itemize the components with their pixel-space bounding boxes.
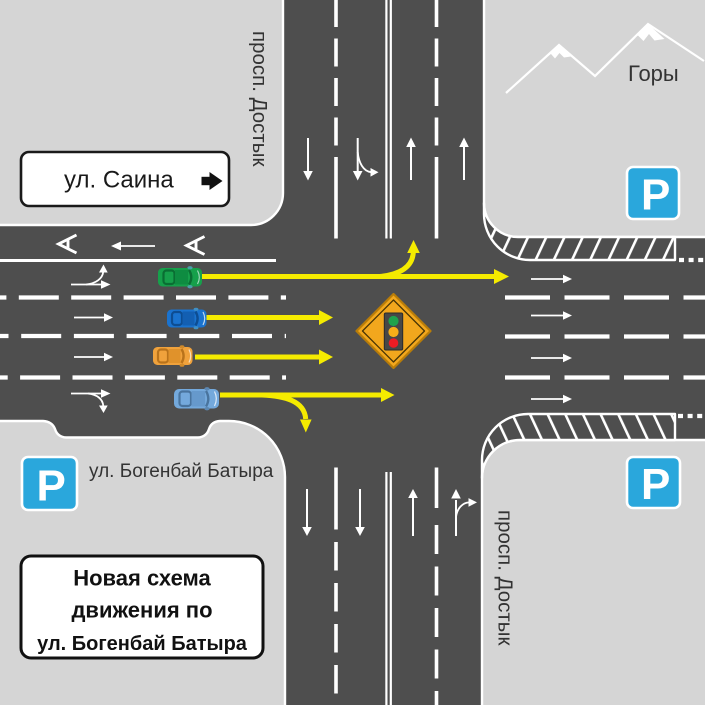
svg-text:движения по: движения по [71,598,212,623]
svg-text:ул. Богенбай Батыра: ул. Богенбай Батыра [89,461,274,482]
svg-text:ул. Саина: ул. Саина [64,167,174,194]
svg-text:P: P [37,462,66,511]
svg-text:ул. Богенбай Батыра: ул. Богенбай Батыра [37,633,248,655]
svg-text:просп. Достык: просп. Достык [248,31,271,168]
svg-text:Новая схема: Новая схема [73,566,211,591]
svg-text:P: P [641,460,670,509]
svg-text:просп. Достык: просп. Достык [494,510,517,647]
svg-text:P: P [641,171,670,220]
svg-text:Горы: Горы [628,61,679,86]
